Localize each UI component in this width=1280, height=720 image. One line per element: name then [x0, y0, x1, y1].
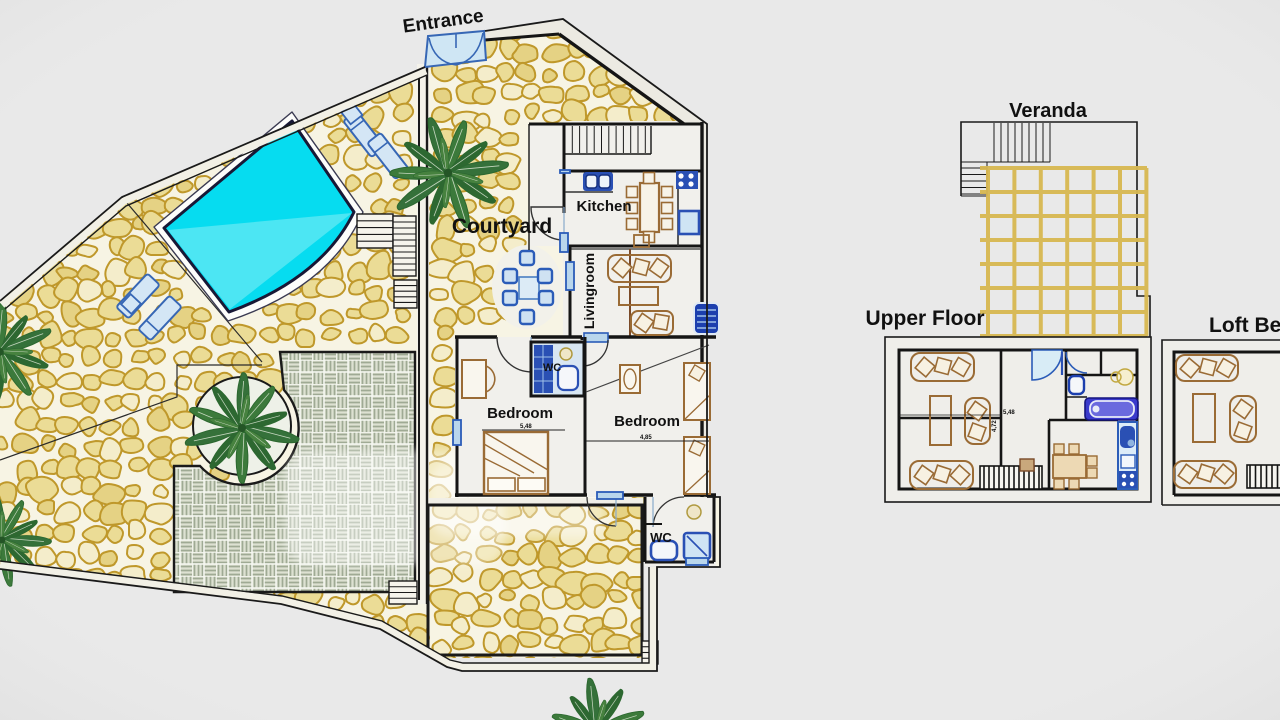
svg-text:5,48: 5,48 — [520, 424, 532, 430]
svg-text:4,85: 4,85 — [640, 435, 652, 441]
svg-text:WC: WC — [543, 362, 561, 374]
svg-text:Loft Bedroom: Loft Bedroom — [1209, 314, 1280, 337]
svg-text:Courtyard: Courtyard — [452, 215, 552, 238]
svg-text:Upper Floor: Upper Floor — [866, 307, 985, 330]
svg-text:Bedroom: Bedroom — [614, 413, 680, 430]
svg-text:5,48: 5,48 — [1003, 410, 1015, 416]
svg-text:WC: WC — [650, 530, 672, 545]
svg-text:Kitchen: Kitchen — [576, 198, 631, 215]
svg-text:Bedroom: Bedroom — [487, 405, 553, 422]
svg-text:Livingroom: Livingroom — [581, 253, 597, 329]
svg-text:4,72: 4,72 — [992, 420, 998, 432]
svg-text:Veranda: Veranda — [1009, 100, 1088, 122]
